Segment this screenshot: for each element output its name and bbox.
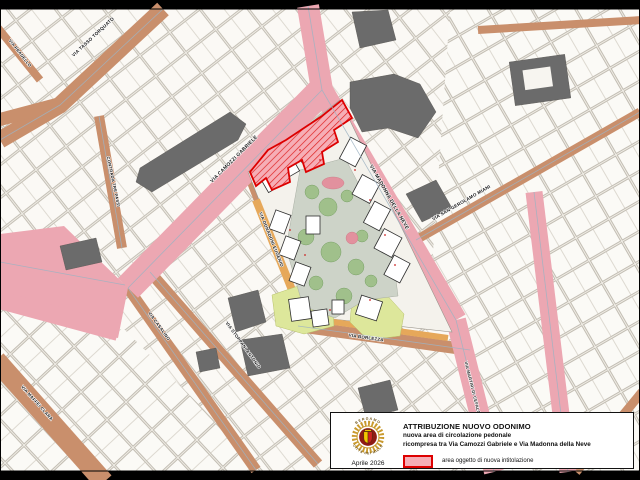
legend-item-label: area oggetto di nuova intitolazione: [442, 458, 533, 464]
legend-row: area oggetto di nuova intitolazione: [403, 455, 629, 468]
top-bar: [0, 0, 640, 9]
map-subtitle-1: nuova area di circolazione pedonale: [403, 431, 629, 440]
bergamo-logo: BERGAMO CITTÀ DEI MILLE: [339, 415, 397, 461]
map-title: ATTRIBUZIONE NUOVO ODONIMO: [403, 422, 629, 431]
map-date: Aprile 2026: [333, 460, 403, 467]
map-subtitle-2: ricompresa tra Via Camozzi Gabriele e Vi…: [403, 440, 629, 449]
title-block: BERGAMO CITTÀ DEI MILLE Aprile 2026 ATTR…: [330, 412, 634, 469]
planning-map-screen: VIA PRADELLO VIA TASSO TORQUATO CONTRADA…: [0, 0, 640, 480]
courtyard-building-top-right: [509, 54, 571, 105]
logo-shield: [364, 430, 372, 444]
legend-swatch-new-area: [403, 455, 433, 468]
city-map: VIA PRADELLO VIA TASSO TORQUATO CONTRADA…: [0, 0, 640, 480]
